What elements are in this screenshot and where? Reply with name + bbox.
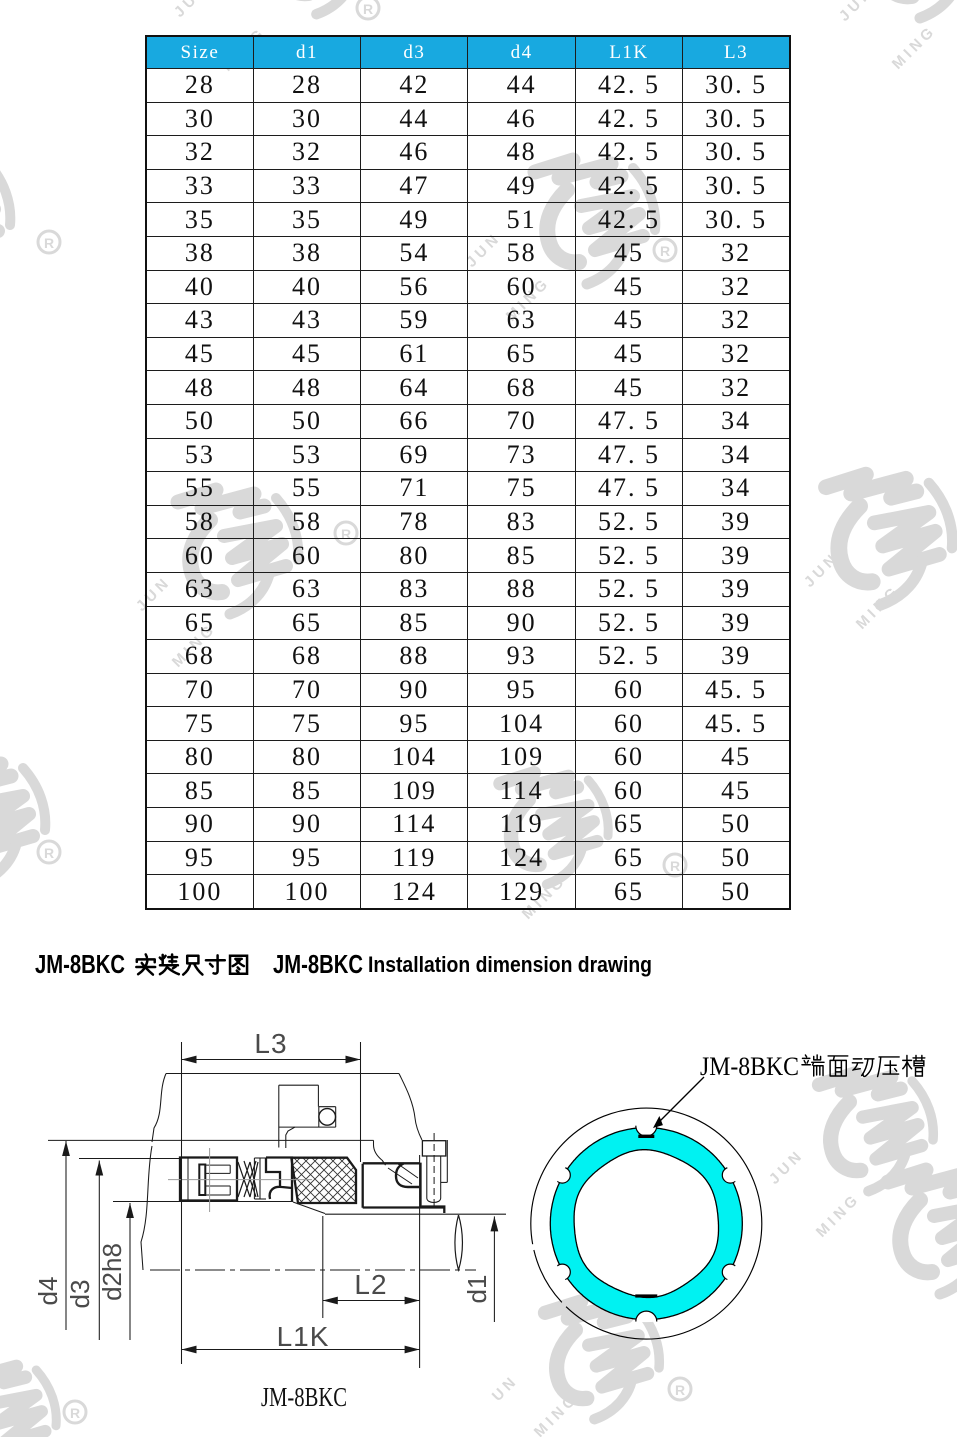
svg-text:Installation dimension drawing: Installation dimension drawing <box>368 952 652 977</box>
svg-text:d1: d1 <box>462 1275 492 1304</box>
svg-text:d4: d4 <box>33 1277 63 1306</box>
svg-text:d3: d3 <box>65 1280 95 1309</box>
svg-text:L3: L3 <box>254 1028 287 1059</box>
svg-text:L2: L2 <box>354 1269 387 1300</box>
svg-text:JM-8BKC: JM-8BKC <box>273 949 363 979</box>
svg-text:JM-8BKC: JM-8BKC <box>261 1382 347 1412</box>
svg-text:JM-8BKC: JM-8BKC <box>700 1052 799 1081</box>
svg-text:L1K: L1K <box>277 1321 330 1352</box>
svg-text:JM-8BKC: JM-8BKC <box>35 949 125 979</box>
svg-text:d2h8: d2h8 <box>97 1243 127 1301</box>
